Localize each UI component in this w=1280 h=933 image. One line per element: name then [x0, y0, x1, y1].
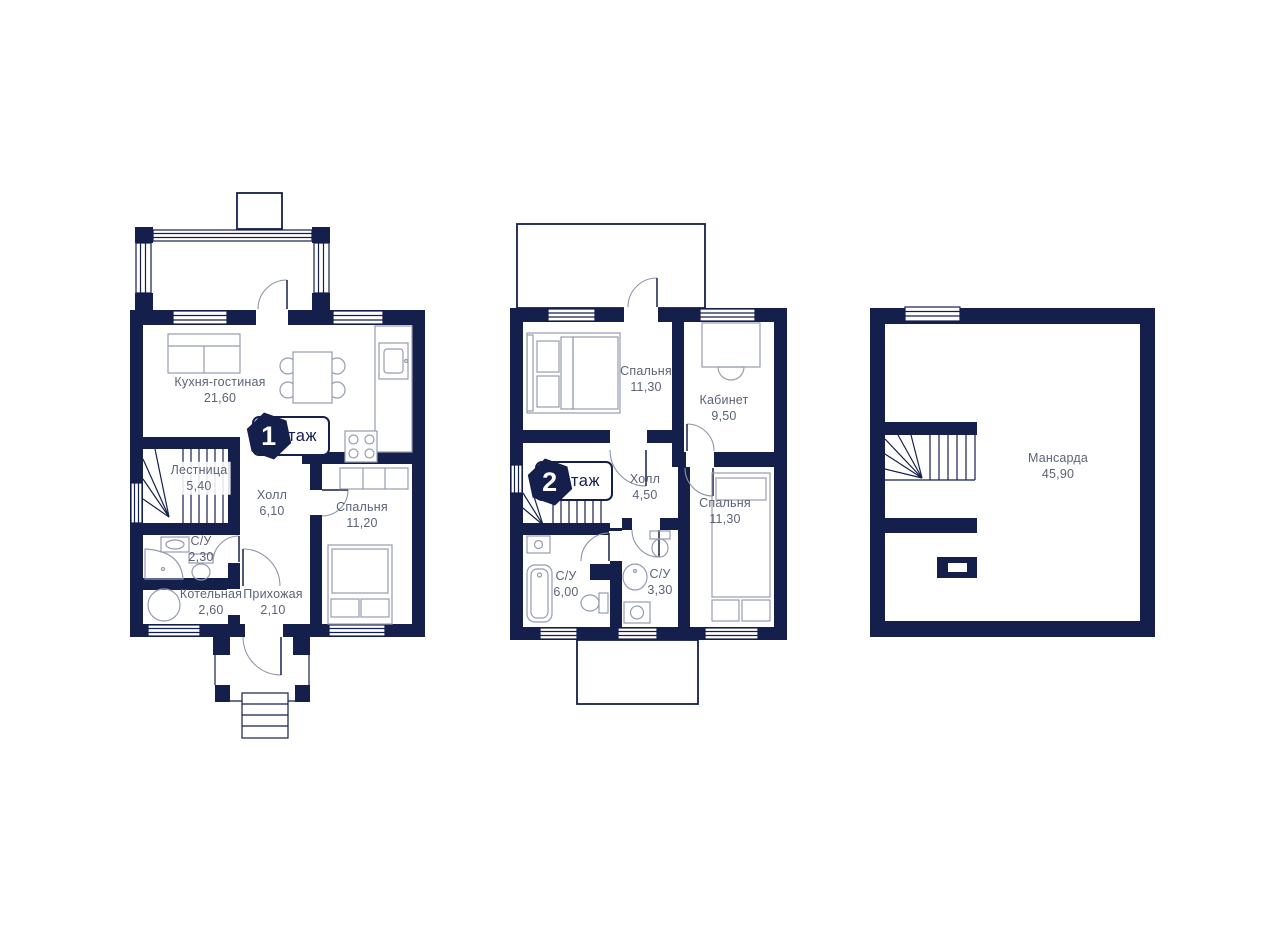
bathroom-2-door-arc — [581, 533, 609, 561]
porch-roof-outline — [577, 640, 698, 704]
terrace-roof-outline — [517, 224, 705, 308]
kitchen-counter — [375, 326, 412, 452]
boiler — [148, 589, 180, 621]
room-label-bathroom-2: С/У6,00 — [553, 568, 578, 601]
toilet-bowl — [581, 595, 599, 611]
room-label-attic: Мансарда45,90 — [1028, 450, 1088, 483]
office-door-arc — [687, 424, 714, 451]
room-label-entry-hall: Прихожая2,10 — [243, 586, 303, 619]
toilet-tank — [599, 593, 608, 613]
room-label-bedroom-2: Спальня11,30 — [620, 363, 672, 396]
wardrobe — [340, 468, 408, 489]
floor-plans-canvas: Этаж 1 Кухня-гостиная21,60 Лестница5,40 … — [0, 0, 1280, 933]
toilet-bowl — [192, 564, 210, 580]
room-label-hall-1: Холл6,10 — [257, 487, 287, 520]
room-label-stairs: Лестница5,40 — [168, 462, 231, 495]
room-label-office: Кабинет9,50 — [700, 392, 749, 425]
sink — [623, 564, 647, 590]
hallway-door-arc — [243, 549, 280, 586]
sink — [161, 537, 189, 552]
roof-exit-door-arc — [628, 278, 657, 307]
dining-table — [280, 352, 345, 403]
room-label-bedroom-1: Спальня11,20 — [336, 499, 388, 532]
porch — [213, 637, 310, 738]
attic-drawing — [865, 300, 1160, 645]
chimney-outline — [237, 193, 282, 229]
attic-plan: Мансарда45,90 — [865, 300, 1160, 645]
room-label-hall-2: Холл4,50 — [630, 471, 660, 504]
interior-walls — [885, 422, 977, 533]
sink — [527, 536, 550, 553]
sofa — [168, 334, 240, 373]
toilet-tank — [650, 531, 670, 539]
bed — [328, 545, 392, 624]
toilet-bowl — [652, 539, 668, 557]
room-label-boiler-room: Котельная2,60 — [180, 586, 242, 619]
washing-machine — [624, 602, 650, 623]
windows — [905, 307, 960, 321]
room-label-bathroom-3: С/У3,30 — [647, 566, 672, 599]
room-label-kitchen-living: Кухня-гостиная21,60 — [174, 374, 265, 407]
desk-chair — [718, 367, 744, 380]
bathroom-3-door-arc — [632, 530, 659, 557]
terrace — [135, 193, 330, 310]
corner-shower — [145, 549, 183, 579]
chimney — [937, 557, 977, 578]
entrance-door-arc — [243, 637, 281, 675]
floor-2-plan: Этаж 2 Спальня11,30 Кабинет9,50 Холл4,50… — [505, 215, 800, 710]
staircase — [885, 435, 975, 480]
stove — [345, 431, 377, 462]
room-label-bedroom-3: Спальня11,30 — [699, 495, 751, 528]
floor-1-plan: Этаж 1 Кухня-гостиная21,60 Лестница5,40 … — [125, 185, 435, 745]
desk — [702, 323, 760, 380]
terrace-door-arc — [258, 280, 287, 309]
room-label-bathroom-1: С/У2,30 — [188, 533, 213, 566]
double-bed — [527, 333, 620, 413]
